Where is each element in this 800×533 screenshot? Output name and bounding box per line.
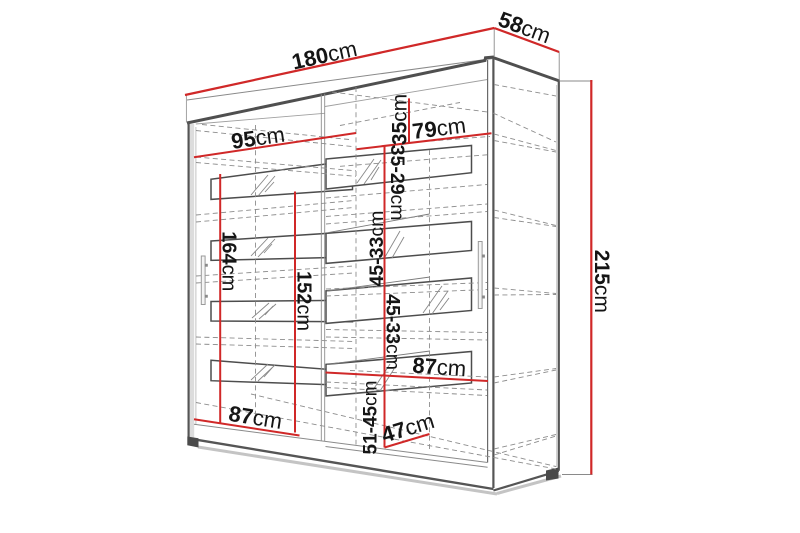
- svg-text:51-45cm: 51-45cm: [361, 381, 382, 455]
- svg-text:152cm: 152cm: [293, 271, 315, 331]
- svg-text:87cm: 87cm: [412, 353, 467, 382]
- svg-text:215cm: 215cm: [590, 250, 613, 313]
- svg-text:35cm: 35cm: [388, 94, 411, 145]
- svg-text:35-29cm: 35-29cm: [386, 145, 408, 221]
- svg-text:45-33cm: 45-33cm: [366, 211, 388, 287]
- svg-text:164cm: 164cm: [217, 231, 239, 291]
- svg-text:45-33cm: 45-33cm: [381, 294, 403, 370]
